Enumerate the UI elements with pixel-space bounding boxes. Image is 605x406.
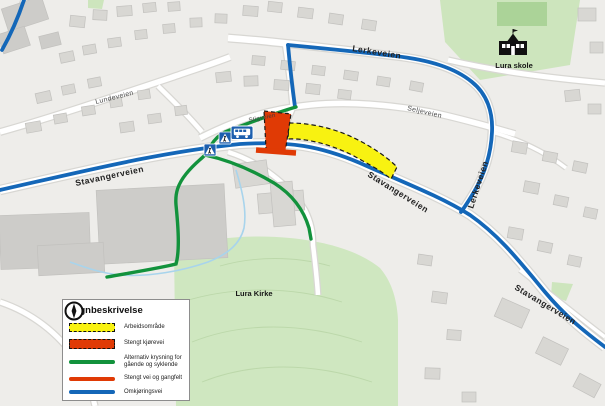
legend-item-work-area: Arbeidsområde	[69, 323, 183, 332]
work-area-swatch	[69, 323, 115, 332]
legend-item-detour: Omkjøringsvei	[69, 389, 183, 396]
building	[511, 141, 528, 154]
building	[39, 32, 62, 49]
building	[69, 15, 85, 28]
building	[53, 113, 67, 124]
building	[306, 83, 321, 94]
building	[564, 89, 580, 102]
building	[0, 26, 30, 54]
building	[244, 76, 258, 86]
building	[297, 7, 313, 19]
bus-stop-icon	[231, 126, 253, 140]
closed-road-swatch	[69, 339, 115, 349]
building	[312, 65, 326, 76]
building	[215, 14, 227, 23]
pedestrian-crossing-icon	[204, 144, 216, 156]
closed-crossing-swatch	[69, 377, 115, 381]
building	[190, 18, 202, 27]
legend-title: Tegnbeskrivelse	[69, 305, 183, 316]
building	[507, 227, 524, 240]
building	[578, 8, 596, 21]
building	[82, 44, 96, 55]
building	[343, 70, 358, 81]
building	[216, 71, 232, 83]
building	[583, 207, 598, 219]
building	[163, 23, 176, 33]
closed-crossing-line	[256, 150, 296, 153]
building	[93, 10, 108, 21]
building	[425, 368, 440, 380]
building	[274, 79, 290, 90]
map-canvas: Stavangerveien Stavangerveien Stavangerv…	[0, 0, 605, 406]
detour-swatch	[69, 390, 115, 394]
building	[147, 113, 161, 124]
building	[553, 195, 569, 208]
building	[567, 255, 582, 267]
building	[119, 121, 134, 133]
building	[168, 2, 181, 12]
legend-item-closed-crossing: Stengt vei og gangfelt	[69, 375, 183, 382]
building	[338, 89, 352, 100]
building	[588, 104, 601, 114]
building	[61, 84, 76, 96]
building	[252, 55, 266, 65]
place-label-lura-kirke: Lura Kirke	[235, 289, 272, 298]
building	[25, 121, 42, 133]
building	[117, 5, 133, 16]
alternative-crossing-swatch	[69, 360, 115, 364]
building	[107, 37, 121, 48]
building	[376, 76, 390, 87]
building	[87, 77, 101, 88]
building	[462, 392, 476, 402]
building	[535, 337, 568, 365]
building	[572, 161, 588, 174]
building	[494, 298, 530, 328]
building	[523, 181, 540, 195]
building	[268, 1, 283, 12]
building	[1, 0, 48, 32]
building	[361, 19, 376, 31]
street-label-lerkeveien-right: Lerkeveien	[465, 160, 490, 210]
building	[96, 184, 228, 265]
building	[35, 90, 52, 103]
building	[417, 254, 432, 266]
building	[243, 5, 259, 16]
building	[573, 373, 601, 398]
building	[174, 105, 187, 115]
building	[59, 51, 75, 64]
building	[447, 330, 462, 341]
building	[537, 241, 553, 254]
legend: Tegnbeskrivelse Arbeidsområde Stengt kjø…	[62, 299, 190, 401]
building	[135, 29, 148, 39]
pedestrian-crossing-icon	[219, 132, 231, 144]
legend-item-alternative-crossing: Alternativ krysning for gående og syklen…	[69, 355, 183, 369]
compass-icon	[63, 300, 85, 322]
building	[431, 291, 447, 304]
building	[81, 105, 95, 116]
place-label-lura-skole: Lura skole	[495, 61, 533, 70]
building	[143, 2, 157, 12]
building	[542, 151, 558, 163]
building	[409, 81, 423, 92]
legend-item-closed-road: Stengt kjørevei	[69, 339, 183, 349]
building	[137, 89, 150, 100]
building	[590, 42, 603, 53]
building	[328, 13, 343, 25]
